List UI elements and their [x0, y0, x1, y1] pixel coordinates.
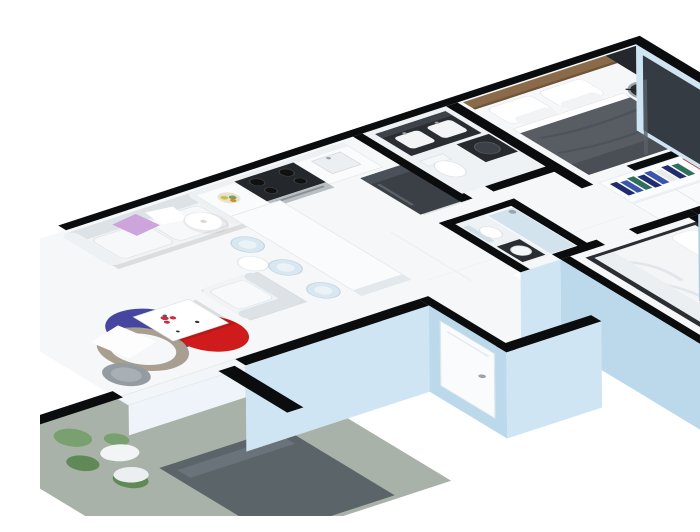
floor-plan-render: [40, 16, 700, 516]
floor-plan-canvas: [40, 16, 700, 516]
